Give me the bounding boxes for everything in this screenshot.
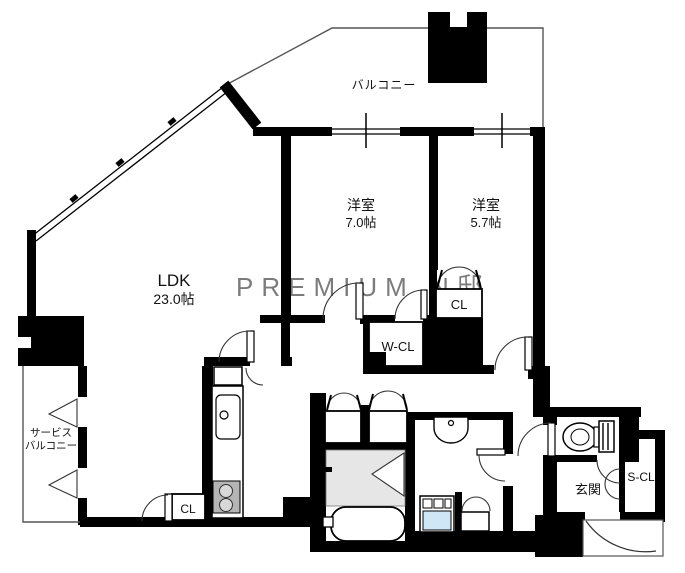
- bathtub: [331, 507, 405, 541]
- entrance-label: 玄関: [575, 482, 601, 497]
- wall-toilet-bottom: [557, 455, 597, 462]
- wcl-label: W-CL: [382, 339, 415, 354]
- wall-bath-bottom: [310, 541, 416, 552]
- wall-block: [283, 497, 326, 527]
- tub-faucet: [323, 517, 333, 527]
- door-leaf: [247, 331, 254, 362]
- wcl-corner-block: [369, 352, 386, 366]
- hall-door-arc: [518, 423, 551, 456]
- wall-segment: [260, 315, 325, 323]
- hall-closet-box: [325, 411, 361, 443]
- wall-washroom-bottom: [412, 531, 543, 552]
- door-leaf: [356, 283, 363, 319]
- cabinet-door-arc: [462, 497, 476, 511]
- closet-door-leaf: [369, 394, 373, 410]
- door-leaf: [548, 423, 555, 456]
- door-leaf: [477, 449, 505, 455]
- wall-right-outer: [533, 127, 545, 379]
- entrance-landing: [583, 520, 663, 556]
- wall-bedroom-divider: [429, 133, 438, 270]
- door-leaf: [165, 494, 172, 521]
- kitchen-door-arc: [246, 368, 263, 385]
- wall-segment: [78, 366, 87, 397]
- wash-cabinet-box: [461, 512, 489, 531]
- ldk-size-label: 23.0帖: [153, 291, 194, 307]
- wall-left-outer: [27, 230, 36, 318]
- window-glass-line: [32, 87, 223, 236]
- wall-segment: [620, 512, 665, 520]
- bathroom-area: [322, 450, 405, 541]
- cabinet-door-arc: [476, 497, 490, 511]
- wall-block: [619, 407, 639, 462]
- wall-bedroom1-left: [281, 127, 291, 323]
- washer-panel: [445, 499, 451, 508]
- floorplan-canvas: PREMIUM N邸 バルコニー: [0, 0, 685, 573]
- floorplan-drawing: PREMIUM N邸 バルコニー: [0, 0, 685, 573]
- toilet-bowl: [563, 423, 597, 451]
- balcony-area: バルコニー: [224, 12, 543, 129]
- wall-segment: [78, 427, 87, 468]
- window-tick: [117, 160, 123, 165]
- closet-door-leaf: [357, 395, 361, 410]
- wall-segment: [281, 315, 290, 366]
- wall-segment: [204, 357, 250, 366]
- ldk-label: LDK: [157, 271, 191, 290]
- toilet-door-arc: [597, 460, 620, 483]
- wall-segment: [503, 486, 513, 532]
- bedroom1-size-label: 7.0帖: [345, 215, 376, 230]
- kitchen-hood: [214, 367, 242, 385]
- door-leaf: [525, 337, 532, 370]
- bedroom2-label: 洋室: [472, 197, 500, 213]
- stove-burner: [220, 499, 233, 512]
- service-balcony-door-wedge: [49, 399, 77, 427]
- pillar-notch: [450, 12, 467, 27]
- washroom-door-arc: [479, 455, 505, 481]
- door-leaf: [421, 290, 427, 319]
- bedroom1-label: 洋室: [347, 197, 375, 213]
- wall-segment: [224, 84, 257, 126]
- ldk-closet: CL: [142, 494, 205, 521]
- closet-bedroom2-label: CL: [451, 297, 468, 312]
- bedroom2-door-arc: [495, 337, 528, 370]
- entrance-area: [583, 520, 663, 556]
- bath-faucet-tick: [322, 467, 332, 472]
- wall-segment: [543, 455, 557, 515]
- walkin-closet: W-CL: [369, 322, 423, 366]
- service-balcony-label-2: バルコニー: [25, 440, 77, 452]
- wall-block: [535, 515, 583, 557]
- diagonal-window-wall: [32, 84, 257, 241]
- hall-closet-box: [369, 411, 407, 443]
- window-tick: [169, 119, 175, 124]
- toilet-tank: [599, 421, 614, 452]
- wall-segment: [543, 512, 585, 520]
- washer-panel: [434, 499, 443, 508]
- service-balcony-door-wedge: [49, 470, 77, 498]
- closet-door-leaf: [403, 394, 407, 410]
- washer-panel: [423, 499, 432, 508]
- window-glass-line: [36, 92, 227, 241]
- stove-burner: [220, 485, 233, 498]
- window-tick: [71, 196, 77, 201]
- wall-segment: [503, 412, 513, 454]
- pipe-shaft-notch: [18, 337, 31, 348]
- shoe-closet-label: S-CL: [627, 470, 655, 484]
- service-balcony-area: サービス バルコニー: [23, 366, 80, 522]
- closet-ldk-label: CL: [180, 502, 196, 516]
- washer-body: [423, 511, 451, 530]
- kitchen-area: [212, 367, 263, 518]
- scl-door-arc: [605, 484, 620, 499]
- service-balcony-label-1: サービス: [30, 427, 72, 439]
- balcony-label: バルコニー: [352, 78, 417, 92]
- wall-right-lower: [655, 430, 665, 522]
- closet-door-leaf: [327, 395, 331, 410]
- toilet-area: [563, 421, 614, 452]
- bedroom2-size-label: 5.7帖: [470, 215, 501, 230]
- wall-segment: [253, 127, 332, 136]
